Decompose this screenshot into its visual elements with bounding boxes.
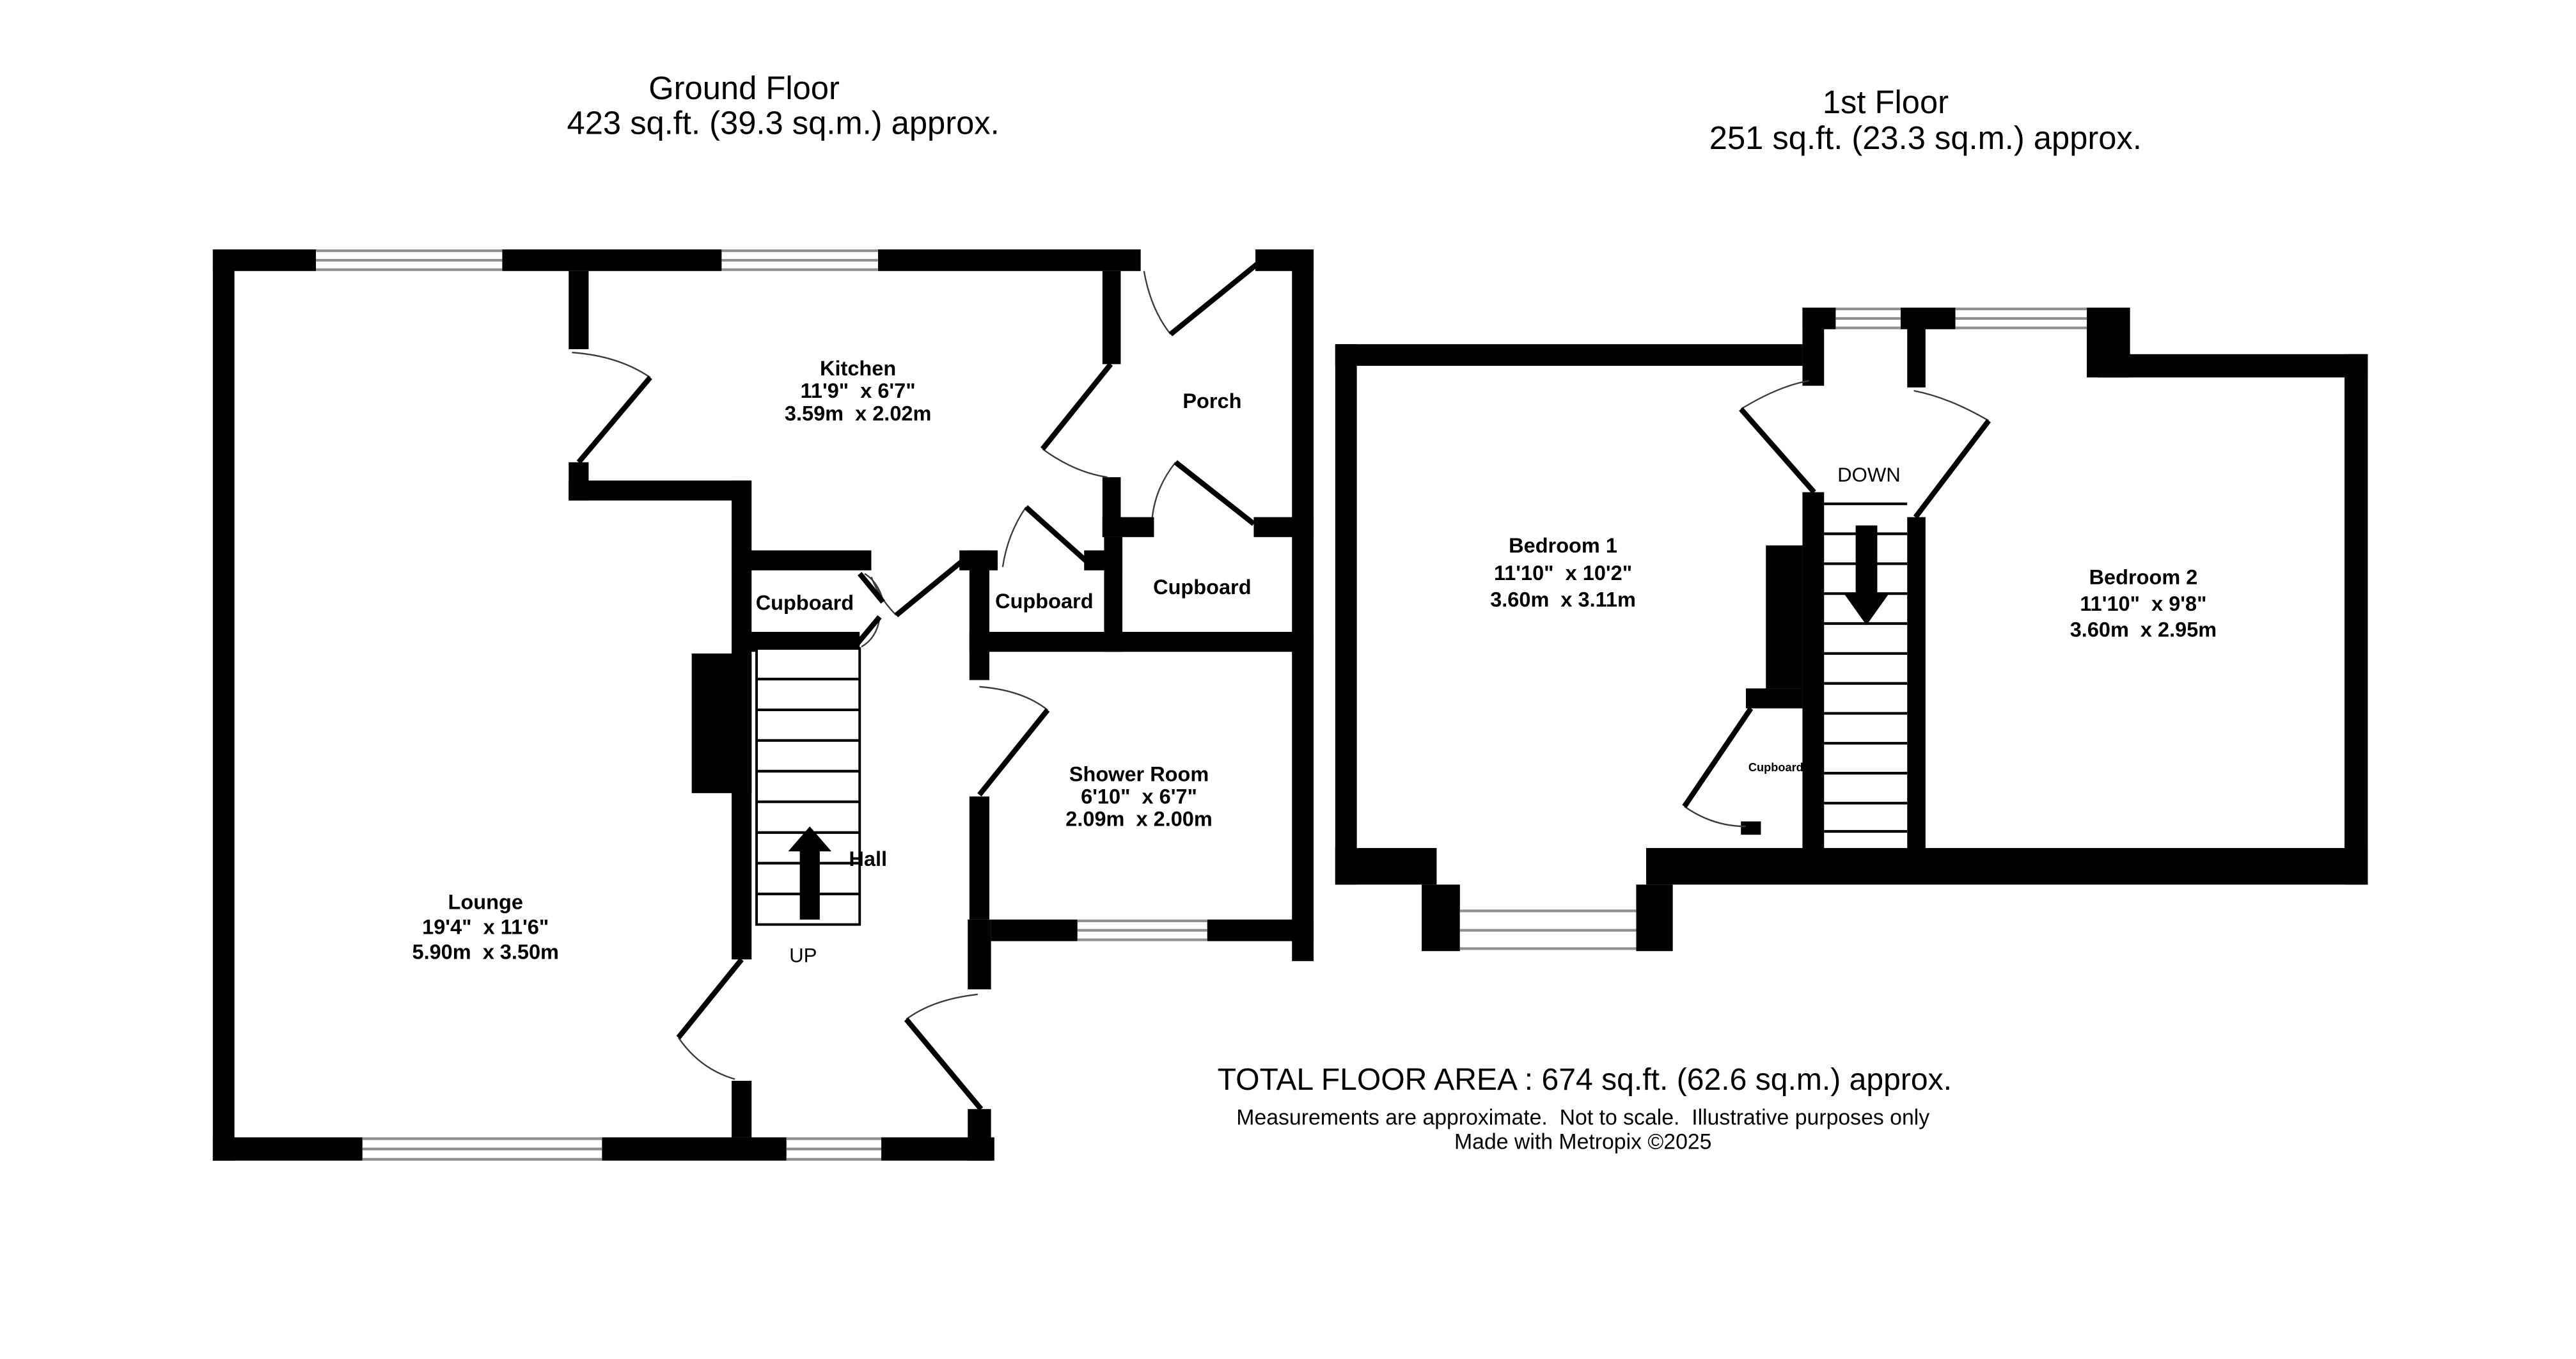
- bedroom1-dims-metric: 3.60m x 3.11m: [1490, 588, 1636, 611]
- first-floor-cupboard-label: Cupboard: [1748, 761, 1803, 774]
- floorplan-canvas: Ground Floor 423 sq.ft. (39.3 sq.m.) app…: [0, 0, 2576, 1359]
- kitchen-dims-metric: 3.59m x 2.02m: [785, 402, 931, 425]
- ground-floor-area: 423 sq.ft. (39.3 sq.m.) approx.: [567, 105, 1000, 141]
- bedroom2-label: Bedroom 2: [2089, 565, 2198, 588]
- footer: TOTAL FLOOR AREA : 674 sq.ft. (62.6 sq.m…: [1218, 1062, 1952, 1154]
- lounge-dims-metric: 5.90m x 3.50m: [412, 941, 558, 964]
- cupboard-middle-label: Cupboard: [995, 590, 1093, 613]
- shower-room-label: Shower Room: [1069, 762, 1209, 785]
- shower-room-window: [1078, 920, 1207, 941]
- first-floor-labels: Bedroom 1 11'10" x 10'2" 3.60m x 3.11m B…: [1490, 464, 2217, 774]
- bedroom1-label: Bedroom 1: [1509, 534, 1617, 557]
- kitchen-porch-door: [1042, 364, 1111, 477]
- lounge-top-window: [316, 249, 502, 271]
- hall-label: Hall: [849, 847, 887, 870]
- ground-floor-title: Ground Floor: [648, 70, 840, 106]
- bedroom2-dims-metric: 3.60m x 2.95m: [2070, 618, 2217, 641]
- first-floor-doors: [1685, 381, 1989, 826]
- bedroom2-door: [1914, 391, 1989, 517]
- shower-room-dims-metric: 2.09m x 2.00m: [1065, 808, 1212, 831]
- cupboard-left-label: Cupboard: [756, 592, 854, 615]
- middle-cupboard-door: [1003, 507, 1089, 567]
- kitchen-hall-door: [871, 562, 961, 615]
- total-floor-area: TOTAL FLOOR AREA : 674 sq.ft. (62.6 sq.m…: [1218, 1062, 1952, 1097]
- porch-label: Porch: [1182, 389, 1241, 412]
- cupboard-right-label: Cupboard: [1153, 576, 1251, 599]
- bedroom1-door: [1741, 381, 1814, 492]
- lounge-dims-imperial: 19'4" x 11'6": [422, 916, 549, 939]
- kitchen-window: [721, 249, 877, 271]
- back-door: [906, 994, 981, 1109]
- disclaimer: Measurements are approximate. Not to sca…: [1236, 1106, 1929, 1130]
- stairs-top-window: [1835, 308, 1900, 329]
- stairs-first: [1824, 504, 1907, 831]
- first-floor-plan: 1st Floor 251 sq.ft. (23.3 sq.m.) approx…: [1335, 84, 2368, 951]
- kitchen-label: Kitchen: [820, 357, 896, 380]
- lounge-kitchen-door: [572, 352, 650, 462]
- credit: Made with Metropix ©2025: [1454, 1129, 1712, 1154]
- bedroom1-bay-window: [1460, 909, 1637, 949]
- lounge-label: Lounge: [448, 891, 523, 914]
- chimney-breast-ground: [692, 654, 752, 793]
- bedroom1-dims-imperial: 11'10" x 10'2": [1494, 562, 1632, 585]
- lounge-bottom-window: [363, 1137, 602, 1160]
- porch-cupboard-door: [1152, 462, 1254, 524]
- bedroom2-dims-imperial: 11'10" x 9'8": [2080, 592, 2206, 615]
- shower-room-dims-imperial: 6'10" x 6'7": [1081, 785, 1197, 808]
- down-arrow-icon: [1844, 526, 1889, 625]
- first-floor-title: 1st Floor: [1823, 84, 1949, 120]
- lounge-hall-door: [679, 959, 742, 1079]
- bedroom2-top-window: [1956, 308, 2087, 329]
- stairs-up-label: UP: [789, 945, 817, 967]
- stairs-ground: [757, 648, 860, 925]
- stairs-down-label: DOWN: [1837, 464, 1901, 486]
- first-floor-cupboard-door: [1685, 709, 1751, 827]
- chimney-breast-first: [1766, 546, 1802, 689]
- front-door: [1144, 263, 1259, 334]
- kitchen-dims-imperial: 11'9" x 6'7": [801, 379, 916, 402]
- first-floor-area: 251 sq.ft. (23.3 sq.m.) approx.: [1709, 120, 2142, 156]
- hall-window: [787, 1137, 881, 1160]
- ground-floor-plan: Ground Floor 423 sq.ft. (39.3 sq.m.) app…: [213, 70, 1314, 1161]
- shower-room-door: [979, 687, 1048, 795]
